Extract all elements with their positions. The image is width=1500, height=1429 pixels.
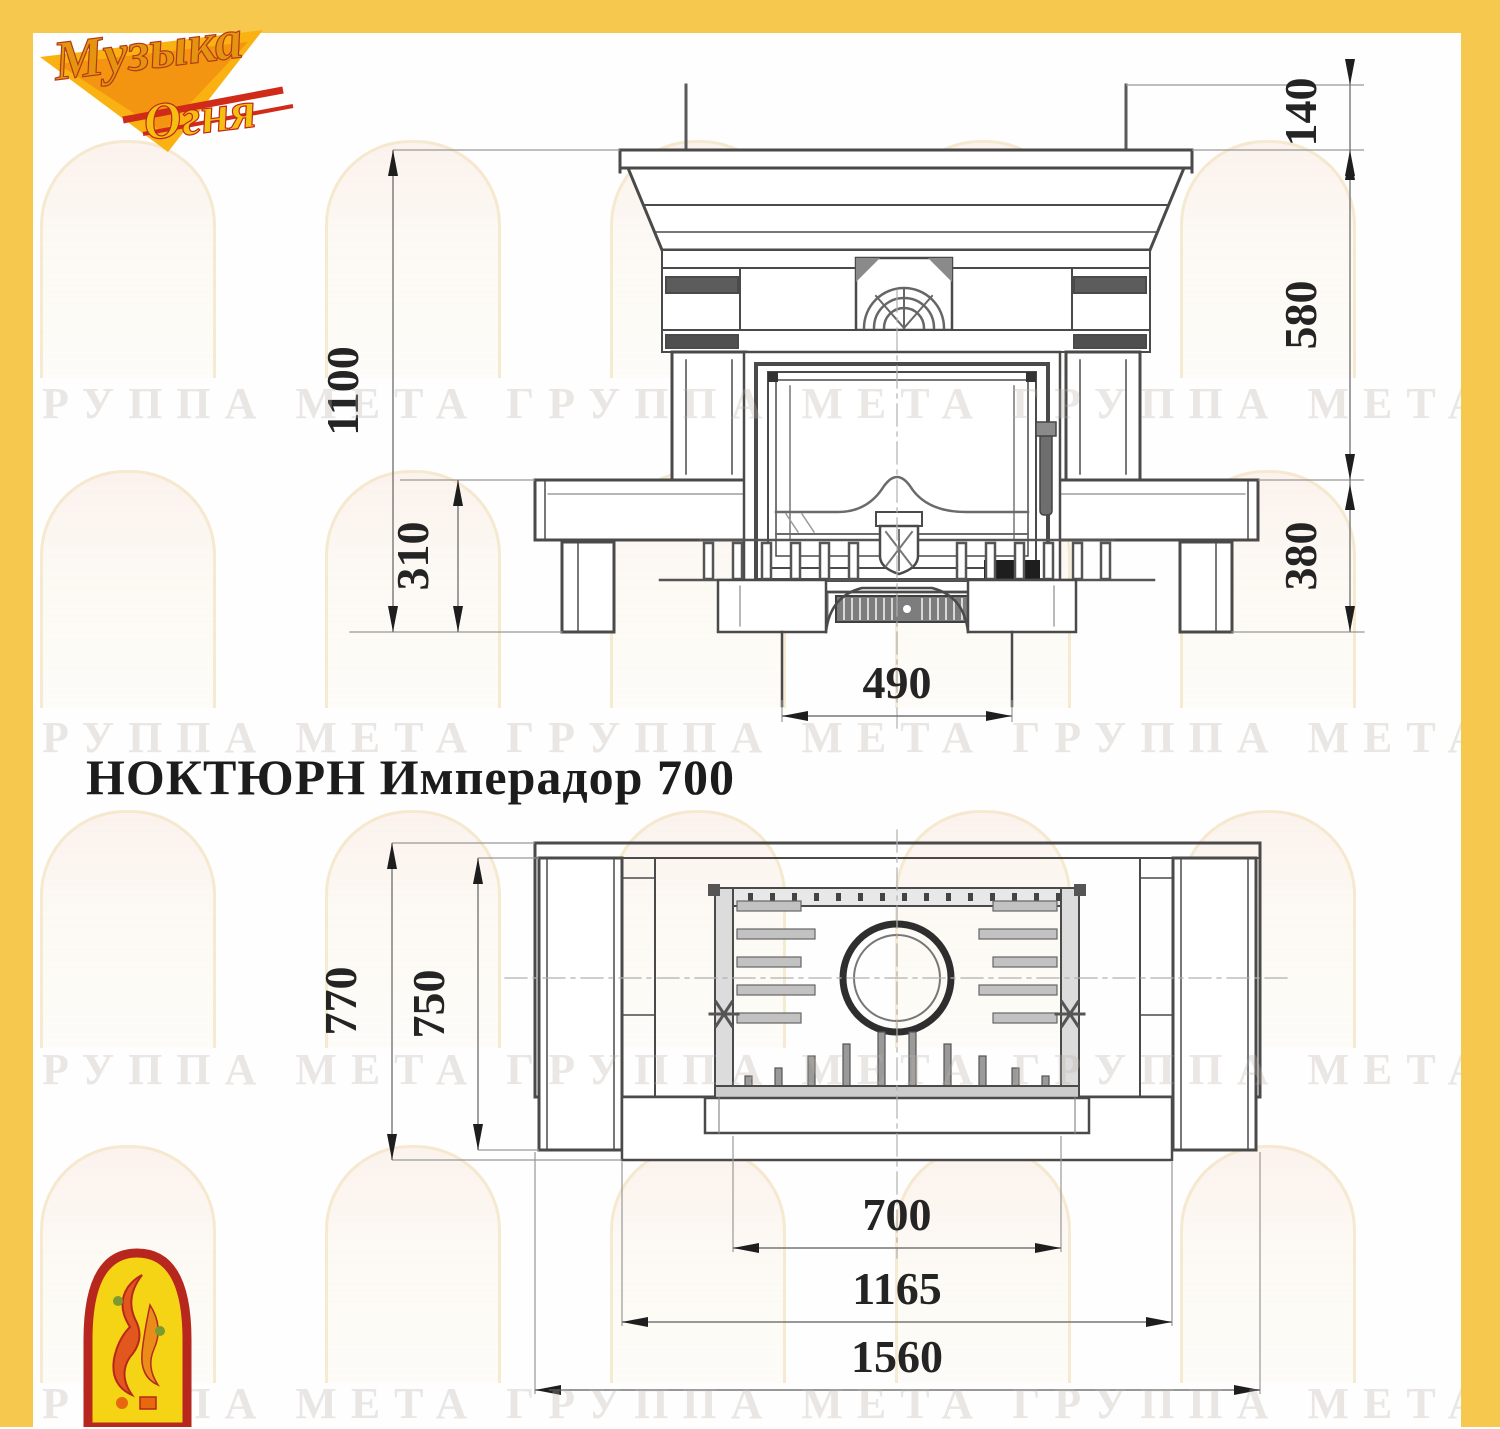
mantel-crown	[620, 150, 1192, 250]
dim-label-1165: 1165	[852, 1263, 941, 1314]
pilaster-left	[672, 352, 746, 480]
page-frame-right	[1461, 0, 1500, 1427]
dim-label-310: 310	[387, 522, 438, 591]
page-frame-left	[0, 0, 33, 1427]
plan-side-wall-right	[1173, 858, 1256, 1150]
dim-label-700: 700	[863, 1189, 932, 1240]
page-title: НОКТЮРН Имперадор 700	[86, 748, 735, 806]
brand-logo: Музыка Огня	[28, 2, 328, 172]
fan-ornament	[856, 258, 952, 330]
architrave-band	[662, 330, 1150, 352]
dim-label-140: 140	[1275, 78, 1326, 147]
dim-label-770: 770	[315, 967, 366, 1036]
pilaster-capital-right	[1074, 277, 1146, 293]
logo-line2: Огня	[141, 82, 260, 152]
pilaster-right	[1066, 352, 1140, 480]
dim-label-490: 490	[863, 657, 932, 708]
dim-label-1560: 1560	[851, 1331, 943, 1382]
dim-label-750: 750	[403, 970, 454, 1039]
pilaster-capital-left	[666, 277, 738, 293]
emblem-shield	[876, 512, 922, 574]
fireplace-technical-drawing: 1100 310 490 140 580 380	[0, 0, 1500, 1427]
foot-left	[562, 542, 614, 632]
dim-label-380: 380	[1275, 522, 1326, 591]
flame-emblem-logo	[80, 1235, 195, 1427]
foot-right	[1180, 542, 1232, 632]
frieze-row	[662, 258, 1150, 330]
plan-side-wall-left	[539, 858, 622, 1150]
dim-label-580: 580	[1275, 281, 1326, 350]
front-elevation-view	[350, 85, 1364, 728]
door-handle	[1040, 430, 1052, 515]
dim-label-1100: 1100	[317, 346, 368, 435]
